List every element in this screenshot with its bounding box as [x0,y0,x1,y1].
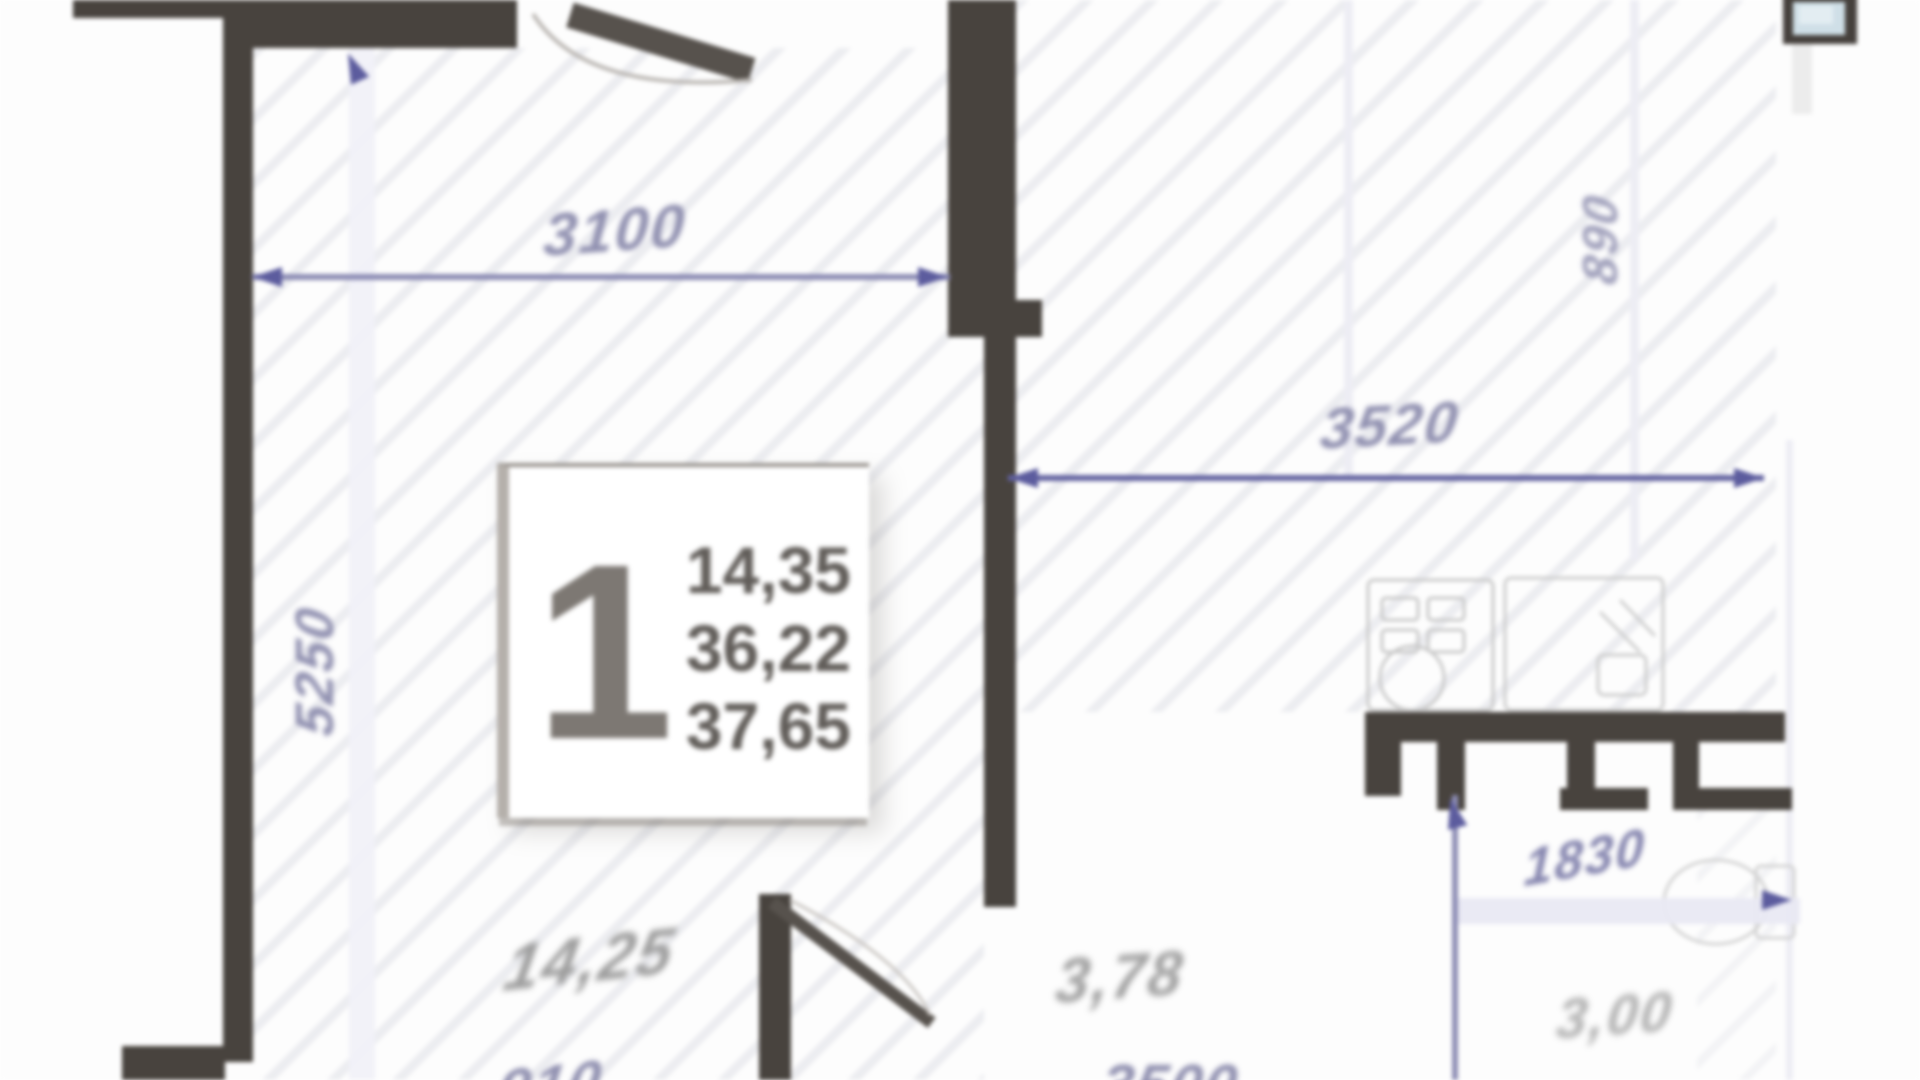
stove-icon [1368,580,1493,710]
unit-area-total: 36,22 [686,615,851,681]
arrow-right-icon [918,267,948,287]
arrow-right-icon [1762,890,1792,910]
arrow-left-icon [1008,468,1038,488]
unit-area-overall: 37,65 [686,693,851,759]
vent-shaft-line [1792,44,1812,114]
unit-area-living: 14,35 [686,537,851,603]
kitchen-sink-icon [1505,578,1663,710]
door-arc-icon [533,14,752,82]
floor-plan: 3100 5250 3520 890 1830 910 3500 14,25 3… [0,0,1920,1080]
door-arc-bottom-icon [790,900,930,1015]
vent-icon [1783,0,1857,44]
dim-bottom-right-vline [1452,795,1458,1080]
area-label-hallway: 3,78 [1011,934,1228,1020]
dim-left-height-label: 5250 [284,552,346,791]
arrow-right-icon [1734,468,1764,488]
unit-number: 1 [535,552,674,752]
dim-top-width-line [252,274,950,280]
arrow-left-icon [252,267,282,287]
unit-info-box: 1 14,35 36,22 37,65 [497,463,869,818]
dim-right-width-line [1008,475,1764,481]
dim-bottom-center-partial-label: 3500 [1055,1052,1284,1080]
dim-right-top-label: 890 [1571,135,1629,343]
